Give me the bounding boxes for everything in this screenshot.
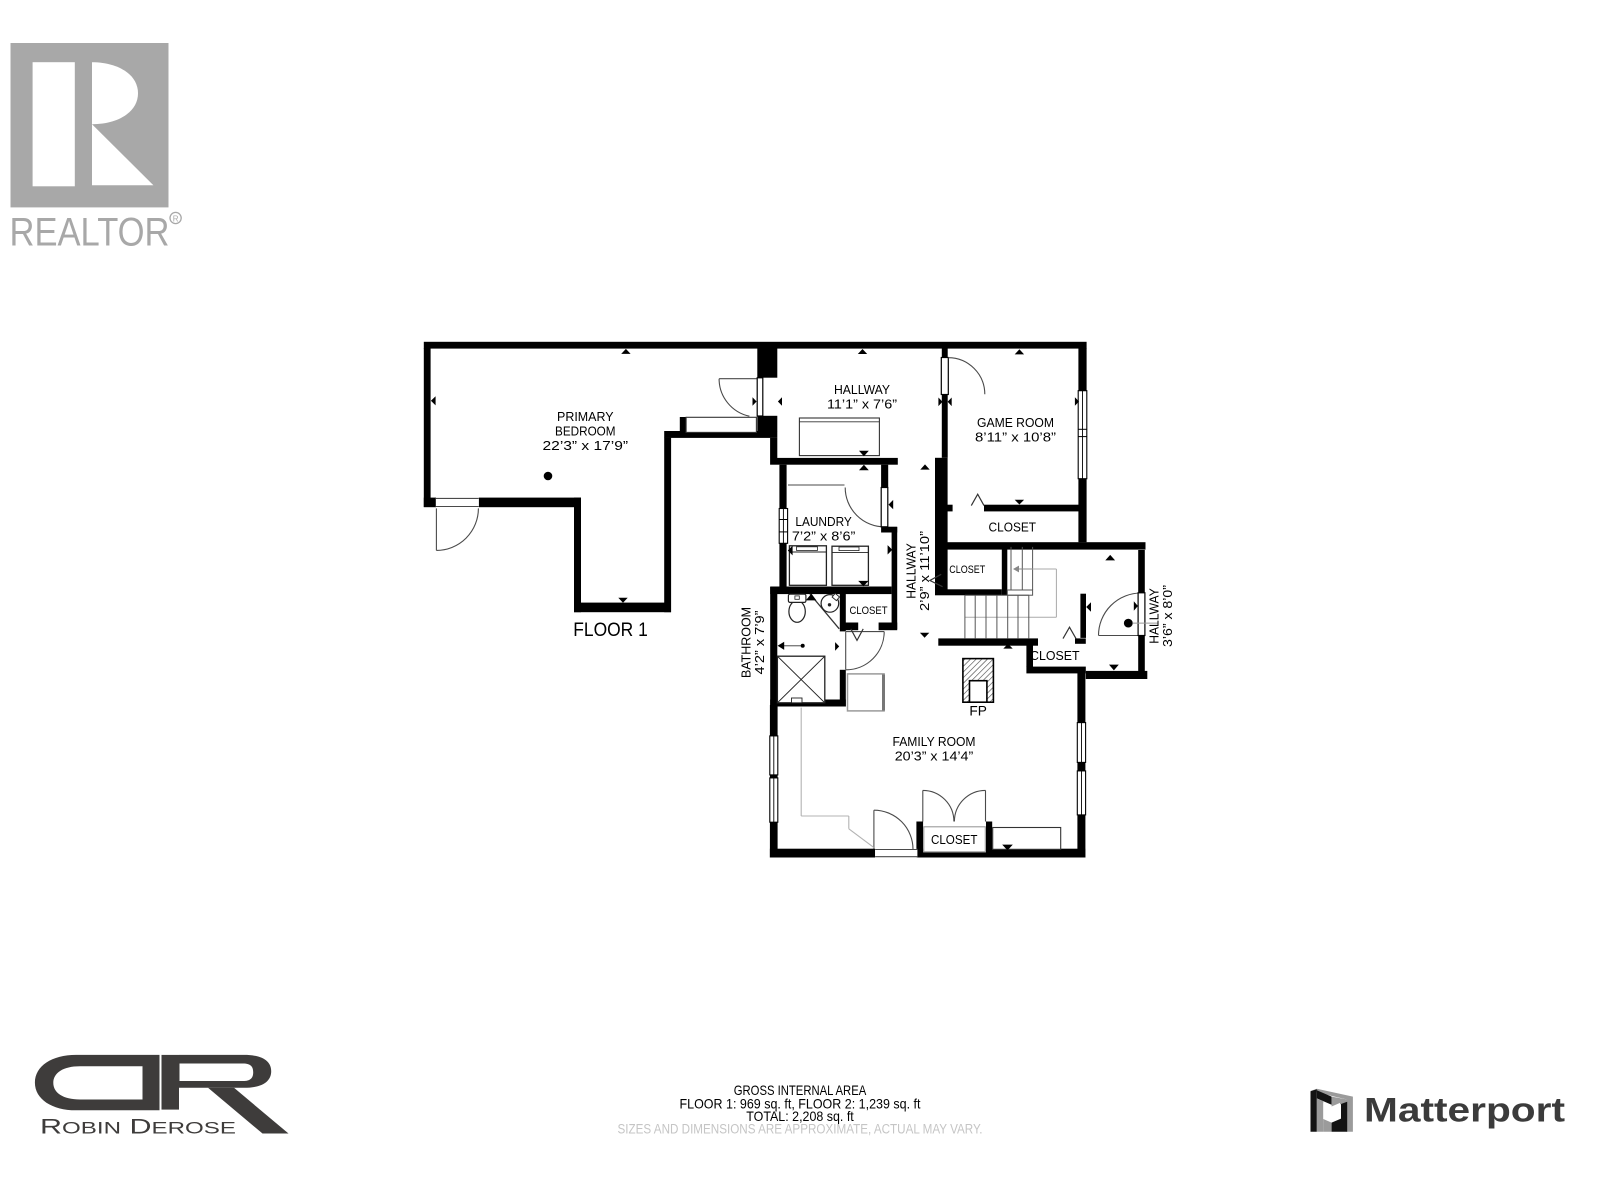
svg-text:ROBIN DEROSE: ROBIN DEROSE <box>40 1115 236 1139</box>
svg-text:3’6” x 8’0”: 3’6” x 8’0” <box>1160 585 1175 647</box>
svg-text:20’3” x 14’4”: 20’3” x 14’4” <box>895 749 974 764</box>
svg-text:7’2” x 8’6”: 7’2” x 8’6” <box>792 529 856 544</box>
svg-text:8’11” x 10’8”: 8’11” x 10’8” <box>975 430 1056 445</box>
svg-text:CLOSET: CLOSET <box>989 520 1037 535</box>
svg-text:CLOSET: CLOSET <box>949 564 985 576</box>
svg-text:LAUNDRY: LAUNDRY <box>795 514 852 529</box>
svg-text:4’2” x 7’9”: 4’2” x 7’9” <box>752 611 767 675</box>
svg-text:PRIMARY: PRIMARY <box>557 409 614 424</box>
svg-text:CLOSET: CLOSET <box>931 832 978 847</box>
svg-text:FP: FP <box>969 704 987 719</box>
svg-text:SIZES AND DIMENSIONS ARE APPRO: SIZES AND DIMENSIONS ARE APPROXIMATE, AC… <box>618 1122 983 1138</box>
svg-text:HALLWAY: HALLWAY <box>834 382 890 397</box>
svg-text:GAME ROOM: GAME ROOM <box>977 415 1054 430</box>
svg-text:2’9” x 11’10”: 2’9” x 11’10” <box>917 531 932 611</box>
svg-text:FAMILY ROOM: FAMILY ROOM <box>893 734 976 749</box>
svg-text:CLOSET: CLOSET <box>850 605 888 617</box>
svg-text:BEDROOM: BEDROOM <box>555 424 616 439</box>
svg-text:CLOSET: CLOSET <box>1030 649 1080 663</box>
svg-text:REALTOR: REALTOR <box>10 210 170 254</box>
svg-text:R: R <box>173 214 179 223</box>
svg-text:FLOOR 1: FLOOR 1 <box>573 619 648 641</box>
svg-text:11’1” x 7’6”: 11’1” x 7’6” <box>827 397 897 412</box>
svg-text:22’3” x 17’9”: 22’3” x 17’9” <box>543 438 629 453</box>
svg-text:Matterport: Matterport <box>1364 1092 1565 1130</box>
